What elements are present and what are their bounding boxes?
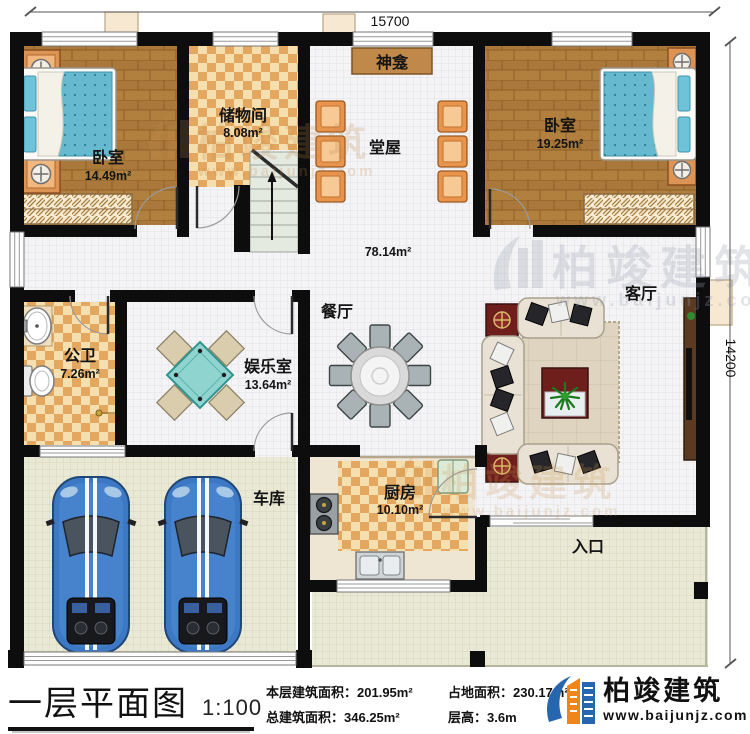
area-statistics: 本层建筑面积：201.95m² 占地面积：230.17m² 总建筑面积：346.… bbox=[266, 682, 569, 726]
drawing-title: 一层平面图 bbox=[8, 676, 188, 725]
brand-logo-icon bbox=[541, 672, 599, 728]
brand-name: 柏竣建筑 bbox=[603, 678, 723, 705]
plant-icon bbox=[687, 312, 695, 320]
label-dining: 餐厅 bbox=[320, 302, 353, 321]
label-hall: 堂屋 bbox=[369, 138, 401, 157]
floor-plan-page: 柏竣建筑 www.baijunjz.com 柏竣建筑 www.baijunjz.… bbox=[0, 0, 750, 734]
porch-pillar bbox=[470, 651, 485, 667]
label-kitchen: 厨房 bbox=[384, 483, 416, 502]
area-bedroom-right: 19.25m² bbox=[537, 137, 584, 151]
mahjong-table bbox=[157, 331, 244, 420]
door-handle bbox=[96, 410, 102, 416]
pillow bbox=[24, 76, 36, 111]
windshield bbox=[63, 516, 119, 556]
pillow bbox=[678, 76, 690, 111]
watermark-url: www.baijunjz.com bbox=[197, 163, 375, 180]
area-bathroom: 7.26m² bbox=[60, 367, 100, 381]
windshield bbox=[175, 516, 231, 556]
brand-logo: 柏竣建筑 www.baijunjz.com bbox=[541, 672, 748, 728]
drawing-title-group: 一层平面图 1:100 bbox=[8, 676, 254, 731]
area-game-room: 13.64m² bbox=[245, 378, 292, 392]
car bbox=[158, 477, 249, 653]
label-storage: 储物间 bbox=[218, 106, 267, 125]
brand-url[interactable]: www.baijunjz.com bbox=[603, 708, 748, 722]
dimension-right: 14200 bbox=[723, 339, 739, 378]
area-kitchen: 10.10m² bbox=[377, 503, 424, 517]
garage-door[interactable] bbox=[24, 652, 296, 665]
stat-floor-area: 本层建筑面积：201.95m² bbox=[266, 682, 448, 701]
title-block: 一层平面图 1:100 本层建筑面积：201.95m² 占地面积：230.17m… bbox=[0, 672, 750, 734]
floor-plan-drawing: 柏竣建筑 www.baijunjz.com 柏竣建筑 www.baijunjz.… bbox=[0, 0, 750, 672]
label-garage: 车库 bbox=[253, 489, 285, 508]
area-storage: 8.08m² bbox=[223, 126, 263, 140]
label-shrine: 神龛 bbox=[376, 53, 409, 72]
area-bedroom-left: 14.49m² bbox=[85, 169, 132, 183]
drawing-scale: 1:100 bbox=[202, 695, 262, 721]
porch-pillar bbox=[694, 582, 708, 599]
label-bedroom-right: 卧室 bbox=[544, 116, 576, 135]
label-bedroom-left: 卧室 bbox=[92, 148, 124, 167]
area-open: 78.14m² bbox=[365, 245, 412, 259]
label-entrance: 入口 bbox=[572, 538, 604, 556]
tv-icon bbox=[686, 348, 692, 420]
label-bathroom: 公卫 bbox=[64, 347, 96, 365]
bed-left bbox=[20, 50, 132, 224]
tv-cabinet bbox=[684, 298, 698, 460]
sofa-set bbox=[482, 298, 619, 484]
watermark-url: www.baijunjz.com bbox=[442, 503, 620, 520]
car bbox=[46, 477, 137, 653]
bed-right bbox=[584, 48, 696, 224]
dining-table bbox=[330, 325, 431, 427]
dimension-top: 15700 bbox=[371, 13, 410, 29]
label-game-room: 娱乐室 bbox=[244, 357, 292, 376]
watermark-text: 柏竣建筑 bbox=[441, 463, 617, 505]
stat-total-area: 总建筑面积：346.25m² bbox=[266, 707, 448, 726]
pillow bbox=[678, 117, 690, 152]
label-living: 客厅 bbox=[625, 284, 657, 303]
pillow bbox=[24, 117, 36, 152]
